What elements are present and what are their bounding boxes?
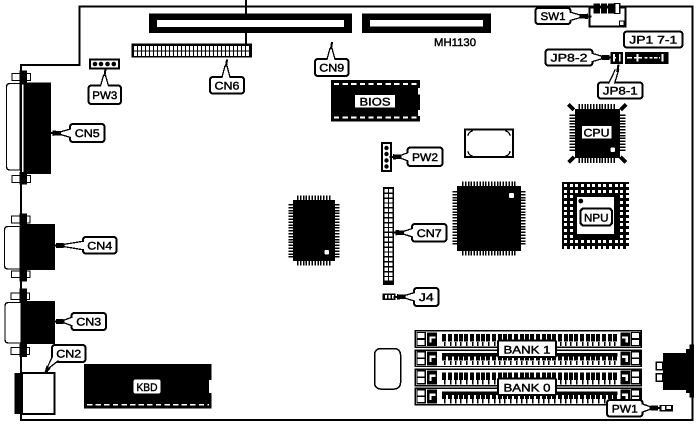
svg-text:NPU: NPU (584, 213, 609, 225)
svg-text:CPU: CPU (584, 127, 610, 139)
svg-text:PW2: PW2 (412, 152, 438, 164)
svg-text:JP1 7-1: JP1 7-1 (629, 35, 677, 47)
svg-text:PW1: PW1 (612, 403, 638, 415)
svg-text:CN7: CN7 (417, 228, 442, 240)
svg-text:CN4: CN4 (87, 240, 112, 252)
svg-text:JP8-2: JP8-2 (551, 53, 588, 65)
svg-text:BANK 1: BANK 1 (504, 344, 551, 356)
svg-text:CN5: CN5 (75, 128, 100, 140)
svg-text:CN3: CN3 (76, 317, 101, 329)
svg-text:BANK 0: BANK 0 (504, 382, 551, 394)
svg-text:MH1130: MH1130 (434, 37, 476, 49)
svg-text:J4: J4 (419, 292, 434, 304)
svg-text:JP8-1: JP8-1 (603, 86, 638, 98)
svg-text:CN2: CN2 (56, 349, 81, 361)
svg-text:PW3: PW3 (92, 90, 117, 102)
svg-text:BIOS: BIOS (360, 97, 391, 109)
svg-text:CN6: CN6 (215, 80, 240, 92)
svg-text:KBD: KBD (137, 382, 158, 394)
svg-text:SW1: SW1 (541, 11, 566, 23)
svg-text:CN9: CN9 (319, 63, 344, 75)
